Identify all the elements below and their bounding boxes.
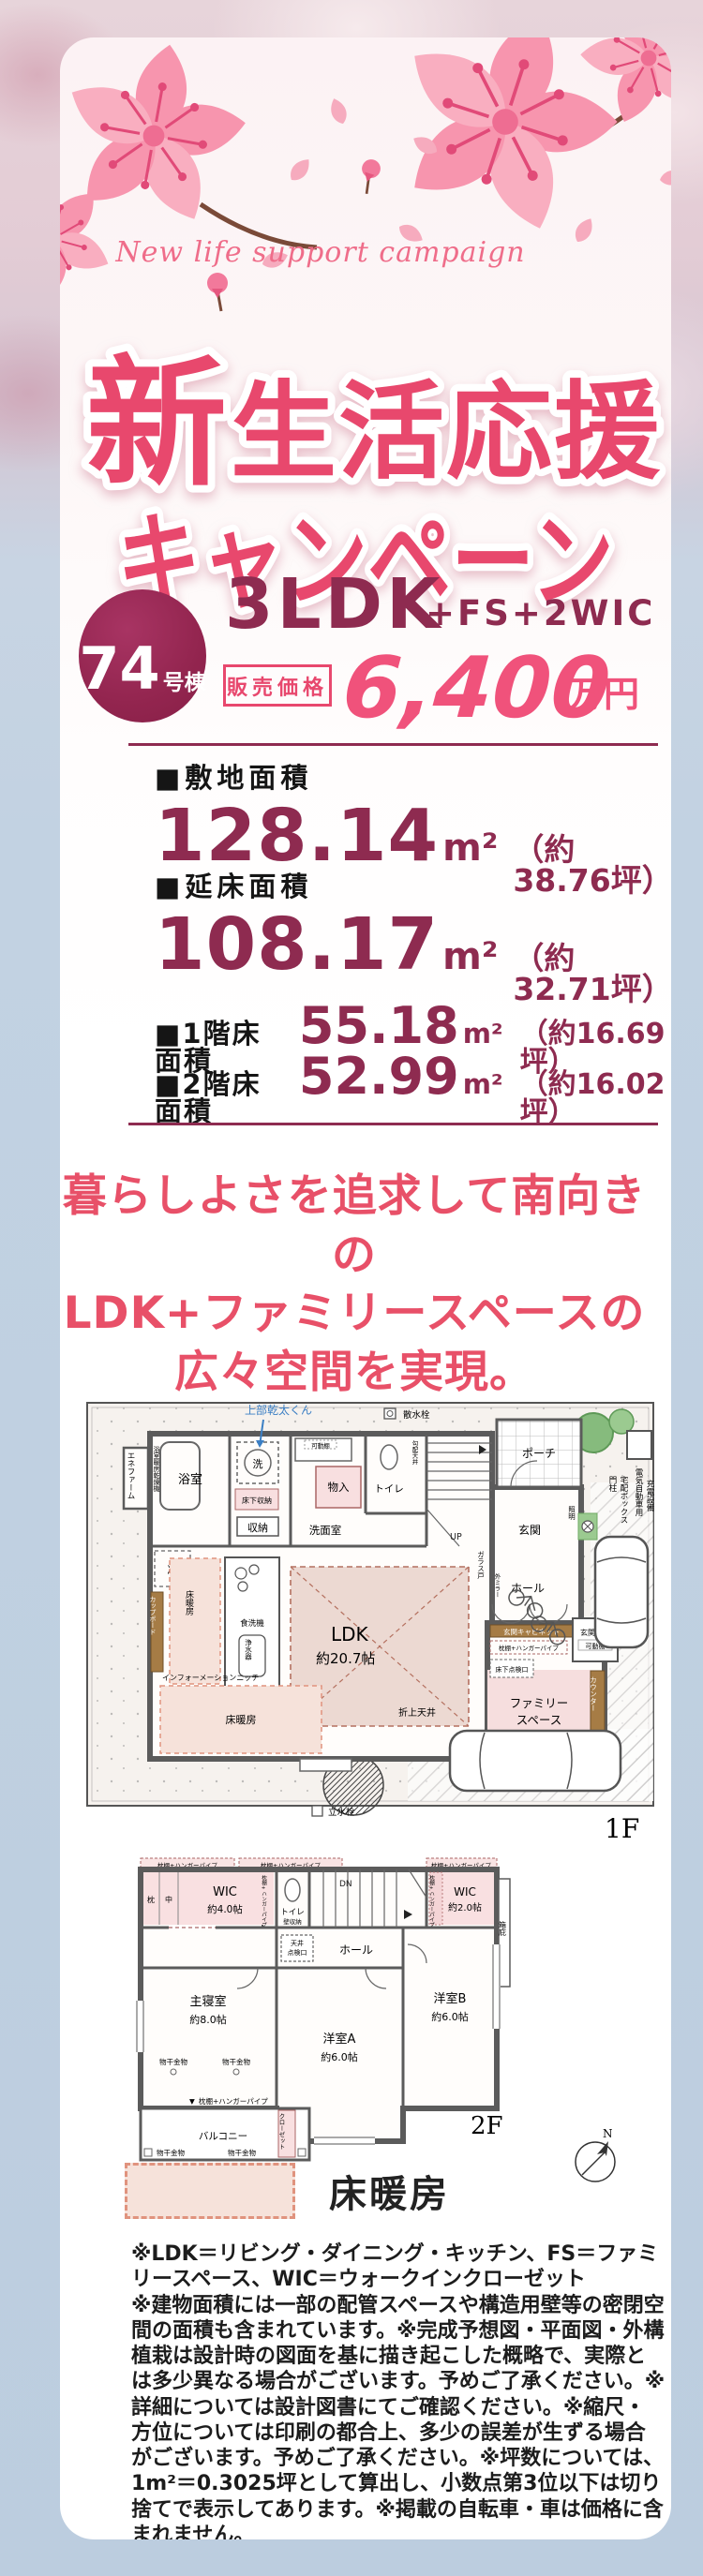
storage-label: 収納 [247,1522,268,1534]
wic4-hanger-strip: 枕棚+ハンガーパイプ [261,1874,267,1928]
site-area-tsubo: （約38.76坪） [513,834,671,896]
price-label-text: 販売価格 [227,671,328,701]
campaign-script-text: New life support campaign [60,236,626,269]
closet-in-label: 物入 [328,1481,350,1494]
floor-heating-south-label: 床暖房 [226,1713,257,1726]
balcony-label: バルコニー [199,2131,247,2142]
flyer-card: New life support campaign 新 生活応援 キャンペーン … [60,37,671,2539]
divider-middle [128,1123,658,1125]
water-tap-1f: 散水栓 [384,1408,430,1421]
dishwasher-label: 食洗機 [240,1618,264,1629]
unit-number: 74 [79,640,159,698]
floor-heating-legend-label: 床暖房 [329,2164,450,2218]
hall-label-2f: ホール [339,1943,373,1957]
wic4-pillow-label: 枕 [147,1895,155,1904]
info-niche-label: インフォーメーションニッチ [162,1674,259,1682]
floor-heating-swatch [125,2163,295,2219]
purifier-label: 浄水器 [244,1638,252,1661]
wic2-hanger-strip: 枕棚+ハンガーパイプ [428,1874,435,1928]
floor2-area-tsubo: （約16.02坪） [520,1071,671,1127]
laundry-mark3: 物干金物 [157,2148,185,2157]
floor2-area-row: ■2階床面積 52.99 m² （約16.02坪） [155,1051,671,1127]
master-size-label: 約8.0帖 [189,2013,227,2026]
layout-extra: +FS+2WIC [426,596,655,631]
room-a-closet-label: クローゼット [277,2113,285,2151]
wic4-2f: 枕 中 WIC 約4.0帖 枕棚+ハンガーパイプ [143,1872,274,1928]
floor1-area-unit: m² [463,1020,503,1048]
laundry-mark2: 物干金物 [222,2057,250,2066]
sloped-ceiling-label: 勾配天井 [411,1439,418,1467]
porch-label: ポーチ [522,1447,556,1460]
room-b-size-label: 約6.0帖 [431,2010,469,2023]
site-area-unit: m² [442,829,498,867]
cupboard-label: カップボード [149,1596,157,1635]
divider-top [128,743,658,746]
stairs-dn-label: DN [339,1880,352,1889]
master-shelf-marker: ▼ [189,2097,195,2106]
room-a-label: 洋室A [323,2032,356,2047]
compass: N [576,2127,615,2181]
hall-label-1f: ホール [511,1582,545,1595]
wic4-size-label: 約4.0帖 [207,1903,243,1915]
unit-number-badge: 74 号棟 [79,589,206,722]
standpipe-label: 立水栓 [328,1807,355,1818]
floor2-area-value: 52.99 [299,1051,459,1102]
light-label: 照明 [567,1506,576,1522]
coffered-ceiling-label: 折上天井 [398,1706,436,1719]
master-shelf-label: 枕棚+ハンガーパイプ [199,2096,268,2106]
price-label: 販売価格 [223,664,332,707]
laundry-mark4: 物干金物 [228,2148,256,2157]
total-area-tsubo: （約32.71坪） [513,943,671,1005]
sakura-illustration [60,37,671,347]
ldk-size-label: 約20.7帖 [316,1650,375,1667]
catch-copy: 暮らしよさを追求して南向きの LDK+ファミリースペースの 広々空間を実現。 [60,1168,660,1402]
wic2-label: WIC [454,1885,476,1898]
entrance-label: 玄関 [518,1523,541,1537]
floor2-area-unit: m² [463,1071,503,1098]
disclaimer: ※LDK＝リビング・ダイニング・キッチン、FS＝ファミリースペース、WIC＝ウォ… [131,2241,666,2539]
floor-plan-1f: エネファーム 浴室暖房乾燥機 浴室 洗 床下収納 収納 洗面室 可動棚 物入 ト… [80,1393,661,1843]
bath-label: 浴室 [178,1472,202,1487]
kanta-label: 上部乾太くん [245,1403,312,1417]
disclaimer-paragraph-1: ※LDK＝リビング・ダイニング・キッチン、FS＝ファミリースペース、WIC＝ウォ… [131,2241,666,2293]
standpipe-1f: 立水栓 [312,1806,355,1818]
total-area-value-row: 108.17 m² （約32.71坪） [155,909,671,1005]
mirror-label: 外ミラー [493,1572,501,1598]
bath-dryer-label: 浴室暖房乾燥機 [153,1445,160,1493]
total-area-label: ■延床面積 [155,873,312,901]
toilet-label-1f: トイレ [374,1483,404,1495]
floor-heating-kitchen-label: 床暖房 [184,1589,194,1616]
entrance-cabinet-label: 玄関キャビネット [503,1627,560,1636]
ceiling-access-label2: 点検口 [288,1948,307,1957]
eave-label: 箱庇 [499,1920,507,1937]
room-a-size-label: 約6.0帖 [321,2050,358,2063]
title-char-shin: 新 [86,343,227,506]
toilet-label-2f: トイレ [280,1908,305,1917]
ev-charger-label2: 充電設備 [645,1479,654,1512]
master-label: 主寝室 [189,1994,226,2009]
total-area-unit: m² [442,938,498,975]
room-b-label: 洋室B [434,1991,467,2006]
shelf-pipe-label-1f: 枕棚+ハンガーパイプ [499,1644,559,1652]
ceiling-access-label1: 天井 [291,1939,304,1947]
water-tap-label: 散水栓 [403,1409,430,1421]
ldk-label: LDK [331,1623,369,1645]
floor-heating-legend: 床暖房 [125,2163,450,2219]
wic4-middle-label: 中 [165,1895,172,1904]
laundry-mark1: 物干金物 [159,2057,187,2066]
underfloor-access-label: 床下点検口 [496,1665,529,1674]
floor2-area-label: ■2階床面積 [155,1071,278,1125]
site-area-value: 128.14 [155,800,439,872]
wic2-size-label: 約2.0帖 [448,1901,482,1913]
wic4-label: WIC [213,1885,237,1899]
underfloor-storage-label: 床下収納 [242,1496,272,1505]
counter-label: カウンター [590,1676,598,1712]
wall-storage-label: 壁収納 [283,1917,302,1926]
ev-charger-label1: 電気自動車用 [634,1468,643,1517]
delivery-box-label: 宅配ボックス [619,1475,628,1524]
disclaimer-paragraph-2: ※建物面積には一部の配管スペースや構造用壁等の密閉空間の面積も含まれています。※… [131,2293,666,2539]
movable-shelf-label: 可動棚 [311,1441,330,1450]
price-unit: 万円 [568,677,639,712]
floor-tag-2f: 2F [471,2112,503,2140]
catch-copy-line2: LDK+ファミリースペースの [60,1285,660,1344]
washroom-label: 洗面室 [309,1524,342,1537]
enefarm-label: エネファーム [126,1452,135,1499]
unit-suffix: 号棟 [163,673,206,694]
total-area-value: 108.17 [155,909,439,981]
stairs-up-label: UP [450,1532,462,1542]
floor1-area-value: 55.18 [299,1001,459,1051]
family-space-label2: スペース [516,1713,562,1727]
glass-door-label: ガラス戸 [476,1551,485,1581]
site-area-label: ■敷地面積 [155,765,312,792]
gate-post-label: 門柱 [607,1476,617,1493]
floor-tag-1f: 1F [605,1813,639,1843]
family-space-label1: ファミリー [510,1696,569,1710]
washer-label: 洗 [253,1458,263,1470]
compass-north-label: N [603,2127,613,2140]
layout-type: 3LDK [225,570,443,639]
title-rest: 生活応援 [231,370,662,494]
catch-copy-line1: 暮らしよさを追求して南向きの [60,1168,660,1285]
